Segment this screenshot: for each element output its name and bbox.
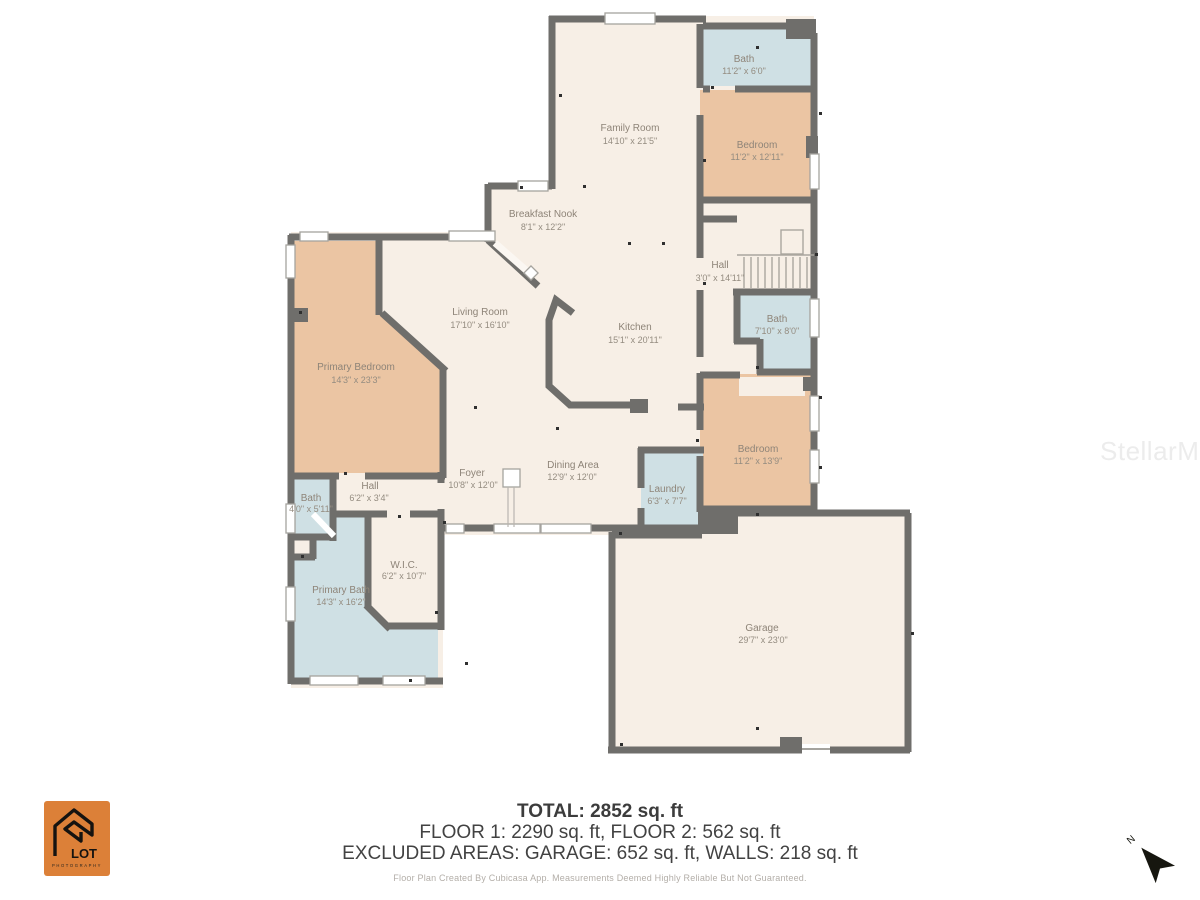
room-label-primary-bedroom: Primary Bedroom xyxy=(317,362,395,373)
room-dims-dining-area: 12'9" x 12'0" xyxy=(547,472,596,482)
room-dims-bedroom-right: 11'2" x 13'9" xyxy=(734,456,783,466)
compass: N xyxy=(1110,815,1195,895)
front-door xyxy=(503,469,520,487)
room-label-living-room: Living Room xyxy=(452,307,508,318)
room-label-bedroom-upper: Bedroom xyxy=(737,140,778,151)
plot-logo-name: LOT xyxy=(71,846,97,861)
total-area-text: TOTAL: 2852 sq. ft xyxy=(0,801,1200,822)
room-dims-living-room: 17'10" x 16'10" xyxy=(450,320,509,330)
floor-areas-text: FLOOR 1: 2290 sq. ft, FLOOR 2: 562 sq. f… xyxy=(0,822,1200,843)
room-label-foyer: Foyer xyxy=(459,468,485,479)
plot-logo-graphic: LOT PHOTOGRAPHY xyxy=(44,801,110,876)
room-label-bath-mid: Bath xyxy=(767,314,788,325)
room-dims-primary-bedroom: 14'3" x 23'3" xyxy=(331,375,380,385)
room-label-hall-upper: Hall xyxy=(711,260,728,271)
room-dims-family-room: 14'10" x 21'5" xyxy=(603,136,657,146)
disclaimer-text: Floor Plan Created By Cubicasa App. Meas… xyxy=(0,873,1200,883)
room-label-bath-upper: Bath xyxy=(734,54,755,65)
room-label-dining-area: Dining Area xyxy=(547,460,599,471)
plot-logo-subtitle: PHOTOGRAPHY xyxy=(52,863,102,868)
room-dims-laundry: 6'3" x 7'7" xyxy=(647,496,686,506)
room-dims-foyer: 10'8" x 12'0" xyxy=(448,480,497,490)
closet-strip xyxy=(739,377,805,396)
plot-photography-logo: LOT PHOTOGRAPHY xyxy=(44,801,110,876)
compass-north-label: N xyxy=(1125,834,1138,847)
room-label-kitchen: Kitchen xyxy=(618,322,651,333)
room-dims-bath-left: 4'0" x 5'11" xyxy=(289,504,333,514)
room-dims-wic: 6'2" x 10'7" xyxy=(382,571,426,581)
room-label-breakfast-nook: Breakfast Nook xyxy=(509,209,578,220)
room-dims-bath-upper: 11'2" x 6'0" xyxy=(722,66,766,76)
stellar-mls-watermark: StellarMLS xyxy=(1100,436,1200,467)
room-dims-breakfast-nook: 8'1" x 12'2" xyxy=(521,222,565,232)
area-summary: TOTAL: 2852 sq. ft FLOOR 1: 2290 sq. ft,… xyxy=(0,801,1200,883)
room-dims-hall-upper: 3'0" x 14'11" xyxy=(696,273,745,283)
floorplan-page: Family Room 14'10" x 21'5" Bath 11'2" x … xyxy=(0,0,1200,900)
room-label-hall-left: Hall xyxy=(361,481,378,492)
room-dims-bath-mid: 7'10" x 8'0" xyxy=(755,326,799,336)
room-label-wic: W.I.C. xyxy=(390,560,417,571)
floorplan-drawing: Family Room 14'10" x 21'5" Bath 11'2" x … xyxy=(0,0,1200,900)
room-label-bedroom-right: Bedroom xyxy=(738,444,779,455)
room-dims-primary-bath: 14'3" x 16'2" xyxy=(316,597,365,607)
north-arrow-icon xyxy=(1132,839,1175,883)
room-dims-kitchen: 15'1" x 20'11" xyxy=(608,335,662,345)
room-label-garage: Garage xyxy=(745,623,779,634)
room-dims-garage: 29'7" x 23'0" xyxy=(738,635,787,645)
room-label-laundry: Laundry xyxy=(649,484,685,495)
excluded-areas-text: EXCLUDED AREAS: GARAGE: 652 sq. ft, WALL… xyxy=(0,843,1200,864)
room-label-family-room: Family Room xyxy=(601,123,660,134)
room-dims-bedroom-upper: 11'2" x 12'11" xyxy=(730,152,783,162)
room-dims-hall-left: 6'2" x 3'4" xyxy=(349,493,388,503)
room-label-primary-bath: Primary Bath xyxy=(312,585,370,596)
room-label-bath-left: Bath xyxy=(301,493,322,504)
